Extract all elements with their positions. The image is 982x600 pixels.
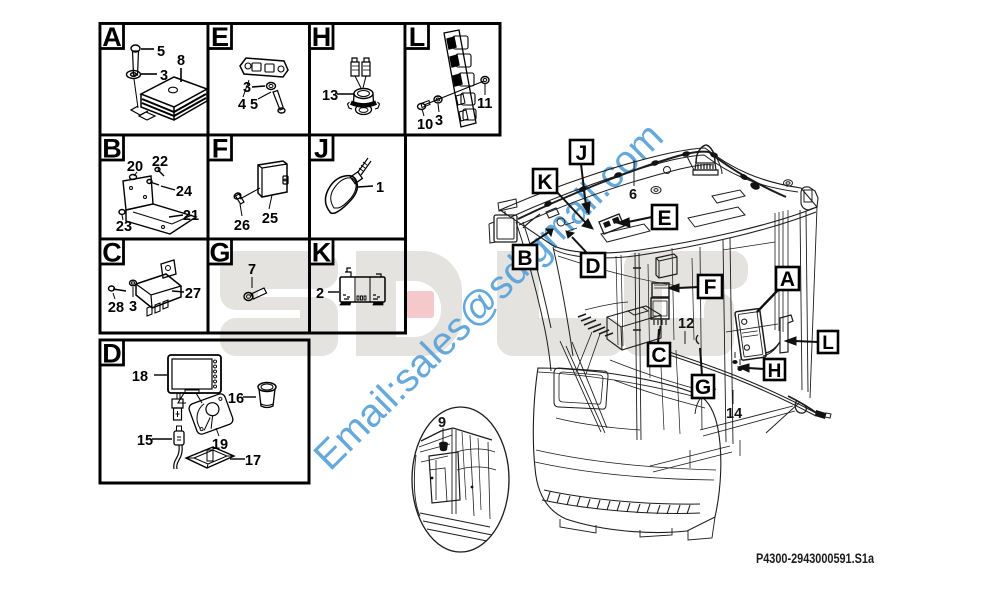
svg-text:10: 10 bbox=[417, 117, 433, 133]
svg-text:B: B bbox=[102, 134, 122, 164]
svg-text:6: 6 bbox=[629, 187, 637, 203]
svg-text:H: H bbox=[768, 361, 782, 382]
svg-text:5: 5 bbox=[250, 97, 258, 113]
svg-text:K: K bbox=[312, 238, 332, 268]
svg-text:F: F bbox=[704, 276, 717, 299]
svg-text:A: A bbox=[780, 268, 795, 291]
svg-text:F: F bbox=[212, 134, 229, 164]
svg-text:28: 28 bbox=[108, 300, 124, 316]
svg-text:P4300-2943000591.S1a: P4300-2943000591.S1a bbox=[756, 551, 874, 566]
svg-text:13: 13 bbox=[322, 88, 338, 104]
svg-text:J: J bbox=[576, 142, 588, 165]
svg-text:1: 1 bbox=[376, 180, 384, 196]
svg-text:L: L bbox=[409, 22, 426, 52]
svg-text:20: 20 bbox=[127, 159, 143, 175]
svg-text:24: 24 bbox=[176, 184, 192, 200]
svg-text:23: 23 bbox=[116, 219, 132, 235]
svg-text:12: 12 bbox=[678, 316, 694, 332]
svg-text:3: 3 bbox=[129, 299, 137, 315]
svg-text:C: C bbox=[102, 238, 122, 268]
svg-text:D: D bbox=[585, 255, 600, 278]
svg-text:E: E bbox=[657, 207, 671, 230]
svg-text:26: 26 bbox=[234, 218, 250, 234]
svg-text:17: 17 bbox=[245, 453, 261, 469]
svg-text:27: 27 bbox=[185, 286, 201, 302]
svg-text:G: G bbox=[695, 376, 711, 399]
svg-text:3: 3 bbox=[160, 68, 168, 84]
svg-text:A: A bbox=[102, 22, 122, 52]
svg-text:K: K bbox=[537, 171, 552, 194]
svg-text:E: E bbox=[211, 22, 229, 52]
svg-text:7: 7 bbox=[248, 262, 256, 278]
svg-text:B: B bbox=[517, 247, 532, 270]
svg-text:L: L bbox=[822, 333, 834, 354]
svg-text:5: 5 bbox=[157, 44, 165, 60]
svg-text:8: 8 bbox=[177, 53, 185, 69]
svg-text:18: 18 bbox=[132, 369, 148, 385]
svg-text:21: 21 bbox=[183, 208, 199, 224]
svg-text:9: 9 bbox=[438, 415, 446, 431]
svg-text:C: C bbox=[651, 344, 666, 367]
svg-text:22: 22 bbox=[152, 154, 168, 170]
svg-text:J: J bbox=[314, 134, 329, 164]
svg-text:25: 25 bbox=[262, 211, 278, 227]
svg-text:G: G bbox=[209, 238, 230, 268]
svg-text:2: 2 bbox=[316, 286, 324, 302]
svg-text:16: 16 bbox=[228, 391, 244, 407]
svg-text:H: H bbox=[312, 22, 332, 52]
svg-text:4: 4 bbox=[238, 97, 246, 113]
svg-text:15: 15 bbox=[137, 433, 153, 449]
svg-text:11: 11 bbox=[477, 96, 492, 112]
svg-text:3: 3 bbox=[435, 113, 443, 129]
svg-text:D: D bbox=[102, 339, 122, 369]
